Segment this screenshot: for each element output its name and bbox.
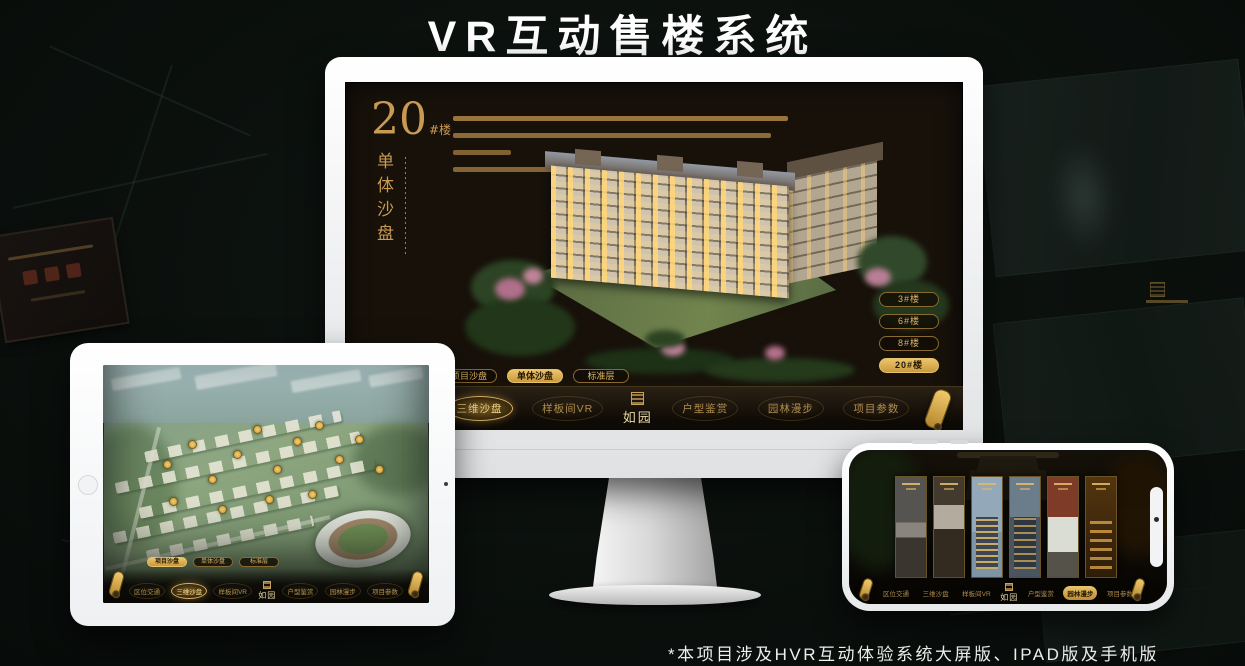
brand-logo-text: 如园 — [623, 407, 653, 426]
sub-tab-standard-floor[interactable]: 标准层 — [573, 369, 629, 383]
panel-caption-line — [1092, 483, 1110, 485]
plaque-text-line — [31, 290, 86, 302]
hedge — [645, 330, 685, 348]
vr-panel-garden[interactable] — [1047, 476, 1079, 578]
footnote-text: *本项目涉及HVR互动体验系统大屏版、IPAD版及手机版 — [668, 640, 1159, 665]
panel-building — [1014, 517, 1036, 569]
sub-tab-group: 项目沙盘 单体沙盘 标准层 — [441, 369, 629, 383]
phone-power-button[interactable] — [950, 440, 968, 444]
panel-caption-line — [1096, 488, 1107, 490]
tablet-camera-icon — [444, 482, 448, 486]
nav-item-project-parameters[interactable]: 项目参数 — [843, 396, 909, 421]
render-dormer — [657, 155, 683, 172]
nav-item-showroom-vr[interactable]: 样板间VR — [532, 396, 603, 421]
phone-nav-item-floorplan-gallery[interactable]: 户型鉴赏 — [1024, 586, 1058, 600]
tablet-brand-seal-icon — [263, 581, 271, 589]
tablet-sub-tab-unit-sandbox[interactable]: 单体沙盘 — [193, 557, 233, 567]
tablet-device: 项目沙盘 单体沙盘 标准层 区位交通 三维沙盘 样板间VR 如园 户型鉴赏 园林… — [70, 343, 455, 626]
unit-number: 20 — [371, 94, 427, 145]
phone-camera-icon — [1154, 517, 1159, 522]
description-text-line — [453, 133, 771, 138]
monitor-stand-neck — [593, 477, 717, 587]
scroll-icon[interactable] — [923, 387, 954, 430]
floor-button-8[interactable]: 8#楼 — [879, 336, 939, 351]
blossom-tree — [495, 278, 525, 300]
brand-seal-icon — [631, 392, 644, 405]
phone-nav-item-3d-sandbox[interactable]: 三维沙盘 — [919, 586, 953, 600]
phone-brand-logo: 如园 — [1000, 583, 1018, 603]
background-plaque — [0, 217, 130, 343]
panel-caption-line — [944, 488, 955, 490]
background-logo-text — [1146, 300, 1188, 303]
nav-item-floorplan-gallery[interactable]: 户型鉴赏 — [672, 396, 738, 421]
nav-item-garden-stroll[interactable]: 园林漫步 — [758, 396, 824, 421]
blossom-tree — [865, 268, 891, 286]
floor-button-20-selected[interactable]: 20#楼 — [879, 358, 939, 373]
background-river — [1043, 133, 1125, 260]
brand-logo: 如园 — [623, 392, 653, 426]
panel-caption-line — [1054, 483, 1072, 485]
unit-suffix: #楼 — [429, 123, 451, 137]
phone-nav-item-garden-stroll-selected[interactable]: 园林漫步 — [1063, 586, 1097, 600]
floor-button-group: 3#楼 6#楼 8#楼 20#楼 — [879, 292, 939, 373]
phone-device: 区位交通 三维沙盘 样板间VR 如园 户型鉴赏 园林漫步 项目参数 — [842, 443, 1174, 611]
tablet-nav-item-floorplan-gallery[interactable]: 户型鉴赏 — [282, 583, 318, 599]
panel-caption-line — [1020, 488, 1031, 490]
tablet-nav-item-garden-stroll[interactable]: 园林漫步 — [325, 583, 361, 599]
tree — [465, 298, 575, 356]
blossom-tree — [523, 268, 543, 284]
plaque-seal — [44, 266, 60, 282]
phone-nav-item-showroom-vr[interactable]: 样板间VR — [958, 586, 995, 600]
vr-panel-exterior-2[interactable] — [1009, 476, 1041, 578]
phone-volume-button[interactable] — [912, 440, 938, 444]
panel-caption-line — [1058, 488, 1069, 490]
description-text-line — [453, 116, 788, 121]
vr-panel-interior-1[interactable] — [895, 476, 927, 578]
tablet-brand-logo: 如园 — [258, 581, 276, 601]
floor-button-6[interactable]: 6#楼 — [879, 314, 939, 329]
monitor-stand-base — [549, 585, 761, 605]
panel-building — [976, 517, 998, 569]
render-dormer — [575, 149, 601, 166]
panel-shelf-items — [1090, 517, 1112, 569]
sub-tab-unit-sandbox-selected[interactable]: 单体沙盘 — [507, 369, 563, 383]
phone-screen: 区位交通 三维沙盘 样板间VR 如园 户型鉴赏 园林漫步 项目参数 — [849, 450, 1167, 604]
nav-item-3d-sandbox-selected[interactable]: 三维沙盘 — [447, 396, 513, 421]
aerial-vignette — [103, 365, 429, 603]
tablet-nav-item-3d-sandbox-selected[interactable]: 三维沙盘 — [171, 583, 207, 599]
plaque-seal — [66, 263, 82, 279]
blossom-tree — [765, 346, 785, 360]
phone-notch — [1150, 487, 1163, 567]
page-title: VR互动售楼系统 — [0, 2, 1245, 64]
unit-headline: 20#楼 单体沙盘 — [371, 98, 451, 264]
vr-panel-exterior-1[interactable] — [971, 476, 1003, 578]
tablet-nav-item-showroom-vr[interactable]: 样板间VR — [213, 583, 252, 599]
panel-caption-line — [1016, 483, 1034, 485]
render-facade-front — [551, 166, 789, 299]
floor-button-3[interactable]: 3#楼 — [879, 292, 939, 307]
unit-decor-rule — [405, 154, 406, 254]
tablet-nav-item-project-parameters[interactable]: 项目参数 — [367, 583, 403, 599]
phone-nav-item-location-traffic[interactable]: 区位交通 — [879, 586, 913, 600]
panel-caption-line — [982, 488, 993, 490]
phone-nav-bar: 区位交通 三维沙盘 样板间VR 如园 户型鉴赏 园林漫步 项目参数 — [849, 576, 1167, 604]
tablet-home-button[interactable] — [78, 475, 98, 495]
tablet-brand-logo-text: 如园 — [258, 590, 276, 601]
plaque-seal — [22, 269, 38, 285]
phone-brand-logo-text: 如园 — [1000, 592, 1018, 603]
panel-caption-line — [978, 483, 996, 485]
background-map-line — [109, 65, 173, 256]
tablet-sub-tab-standard-floor[interactable]: 标准层 — [239, 557, 279, 567]
phone-brand-seal-icon — [1005, 583, 1013, 591]
tablet-screen: 项目沙盘 单体沙盘 标准层 区位交通 三维沙盘 样板间VR 如园 户型鉴赏 园林… — [103, 365, 429, 603]
render-dormer — [737, 161, 763, 178]
scroll-cap — [933, 421, 943, 430]
background-aerial-photo — [976, 59, 1245, 278]
building-3d-render[interactable] — [465, 140, 915, 400]
page-canvas: VR互动售楼系统 20#楼 单体沙盘 — [0, 0, 1245, 666]
panel-caption-line — [906, 488, 917, 490]
unit-title-vertical: 单体沙盘 — [371, 152, 396, 264]
tablet-sub-tab-group: 项目沙盘 单体沙盘 标准层 — [147, 557, 279, 567]
panel-caption-line — [940, 483, 958, 485]
panel-caption-line — [902, 483, 920, 485]
vr-panel-interior-2[interactable] — [933, 476, 965, 578]
tablet-nav-bar: 区位交通 三维沙盘 样板间VR 如园 户型鉴赏 园林漫步 项目参数 — [103, 569, 429, 603]
vr-panel-shelf[interactable] — [1085, 476, 1117, 578]
tablet-nav-item-location-traffic[interactable]: 区位交通 — [129, 583, 165, 599]
background-logo-icon — [1150, 282, 1165, 297]
hedge — [705, 358, 855, 382]
tablet-sub-tab-project-sandbox-selected[interactable]: 项目沙盘 — [147, 557, 187, 567]
plaque-text-line — [8, 244, 93, 260]
